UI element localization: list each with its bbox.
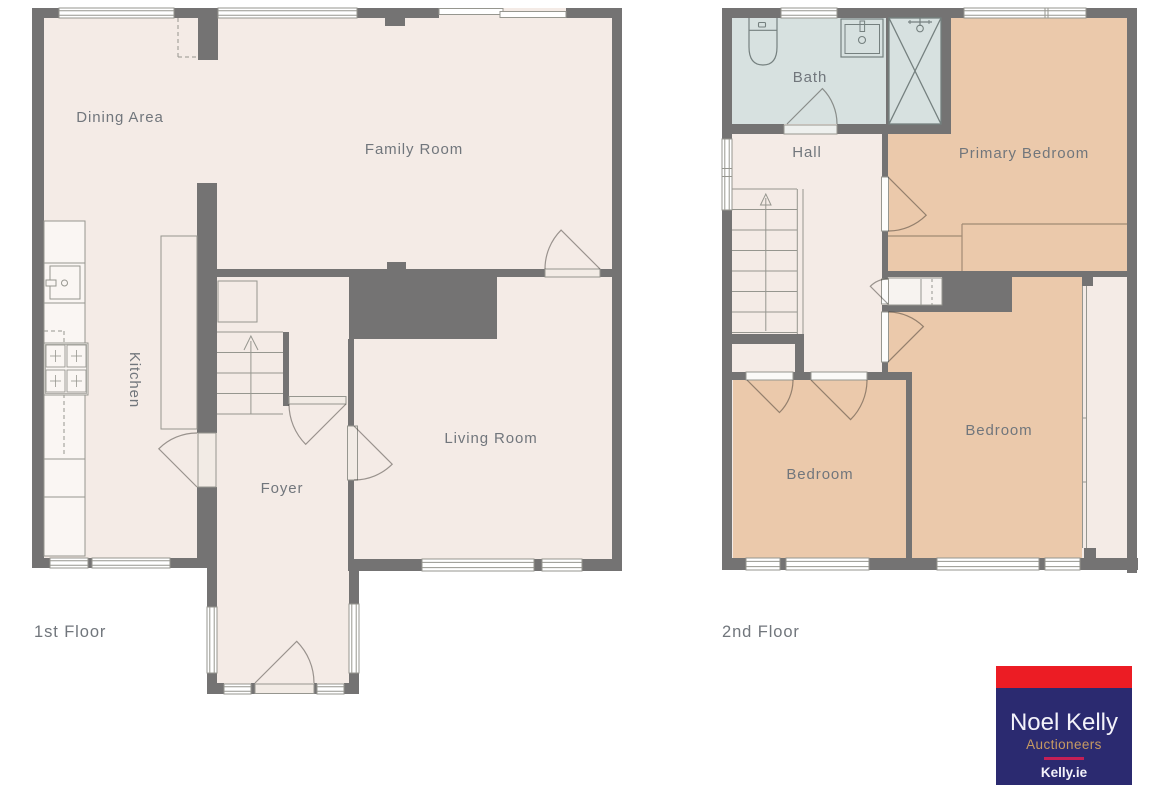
svg-text:Dining Area: Dining Area [76, 109, 163, 126]
svg-text:Bedroom: Bedroom [965, 422, 1032, 439]
svg-text:Auctioneers: Auctioneers [1026, 737, 1102, 752]
svg-text:Primary Bedroom: Primary Bedroom [959, 145, 1089, 162]
svg-text:2nd Floor: 2nd Floor [722, 623, 800, 641]
svg-text:Kelly.ie: Kelly.ie [1041, 765, 1088, 780]
svg-text:Noel Kelly: Noel Kelly [1010, 709, 1118, 736]
svg-text:Family Room: Family Room [365, 141, 463, 158]
svg-text:Kitchen: Kitchen [126, 352, 143, 408]
svg-text:Living Room: Living Room [444, 430, 537, 447]
svg-text:Hall: Hall [792, 144, 821, 161]
svg-text:Foyer: Foyer [261, 480, 304, 497]
svg-text:1st Floor: 1st Floor [34, 623, 106, 641]
svg-text:Bath: Bath [793, 69, 827, 86]
svg-text:Bedroom: Bedroom [786, 466, 853, 483]
